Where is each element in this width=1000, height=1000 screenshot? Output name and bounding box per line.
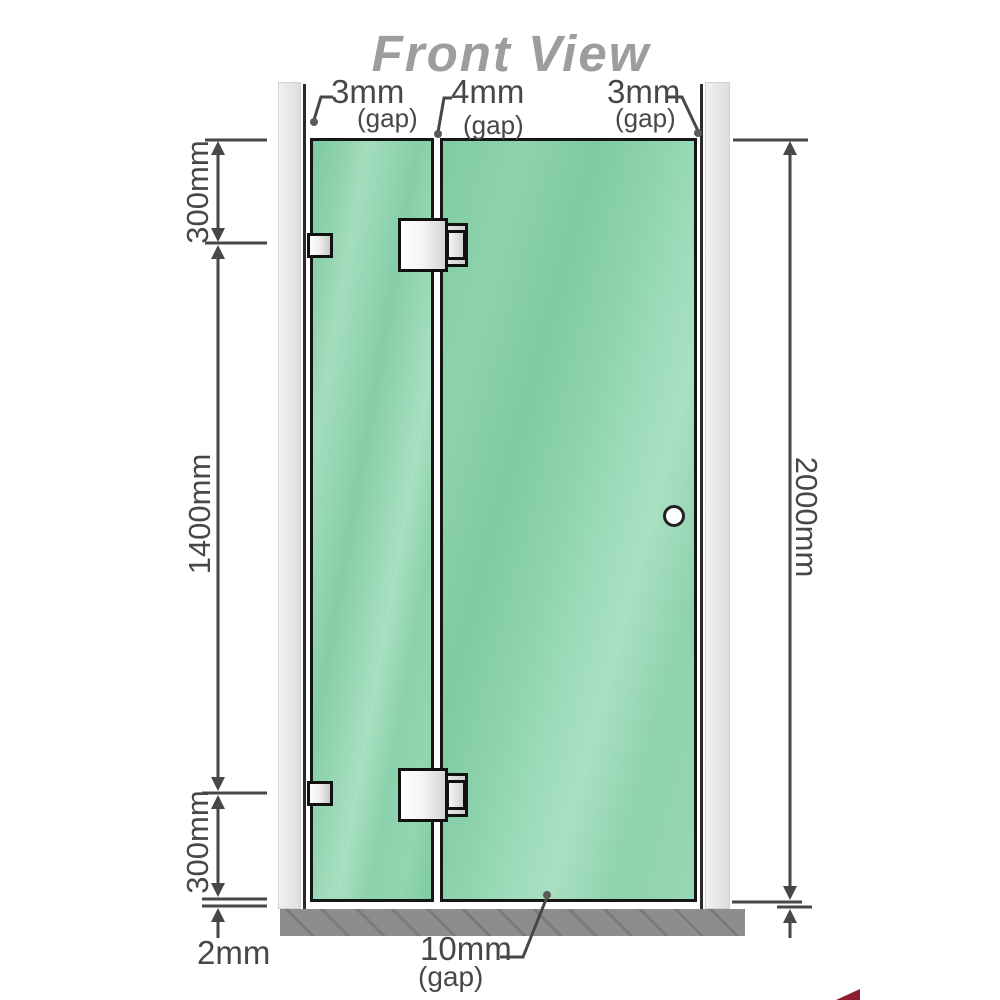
- gap-label-left: 3mm (gap): [331, 78, 418, 130]
- dim-label-bottom-300mm: 300mm: [180, 790, 216, 893]
- gap-label-right: 3mm (gap): [607, 78, 680, 130]
- gap-label-middle: 4mm (gap): [451, 78, 524, 137]
- gap-label-bottom: 10mm (gap): [420, 934, 512, 990]
- dim-label-2mm: 2mm: [197, 934, 270, 972]
- gap-unit: (gap): [463, 113, 524, 137]
- watermark-fragment: [836, 989, 860, 1000]
- leader-lines: [314, 97, 698, 957]
- gap-unit: (gap): [418, 964, 512, 990]
- dim-label-top-300mm: 300mm: [180, 140, 216, 243]
- gap-value: 3mm: [331, 78, 418, 106]
- leader-dots: [310, 118, 702, 899]
- gap-value: 4mm: [451, 78, 524, 106]
- gap-value: 3mm: [607, 78, 680, 106]
- dimension-tick-lines: [202, 140, 812, 907]
- dimension-annotations: [0, 0, 1000, 1000]
- gap-unit: (gap): [357, 106, 418, 130]
- dimension-arrowheads: [211, 141, 797, 923]
- front-view-diagram: Front View: [0, 0, 1000, 1000]
- dim-label-1400mm: 1400mm: [182, 454, 218, 575]
- gap-value: 10mm: [420, 934, 512, 964]
- dim-label-2000mm: 2000mm: [788, 457, 824, 578]
- dimension-shaft-lines: [218, 153, 790, 938]
- gap-unit: (gap): [615, 106, 680, 130]
